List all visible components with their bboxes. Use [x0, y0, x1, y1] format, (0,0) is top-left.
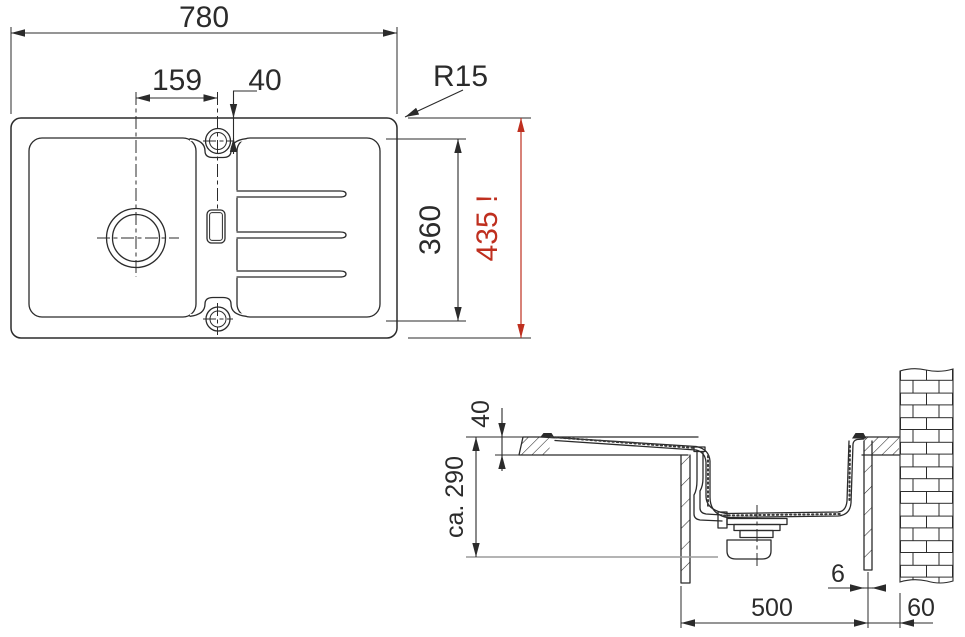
dim-360: 360 — [386, 139, 466, 321]
overflow-hole — [207, 210, 225, 243]
cabinet-panel-left — [681, 455, 690, 583]
dim-435-label: 435 ! — [471, 195, 504, 262]
dim-ca290-label: ca. 290 — [441, 456, 469, 538]
bowl-outer-wall — [696, 439, 864, 518]
groove-2 — [237, 232, 346, 238]
dim-40-top-label: 40 — [248, 64, 281, 97]
dim-780: 780 — [11, 1, 397, 114]
brick-wall — [900, 369, 953, 583]
drawing-canvas: 780 159 40 R15 360 435 ! — [0, 0, 965, 637]
groove-1 — [237, 191, 346, 197]
dim-360-label: 360 — [414, 205, 447, 255]
drain-trap — [727, 540, 771, 559]
rim-edge-right — [852, 433, 867, 439]
sink-outline — [11, 118, 397, 338]
drainboard-grooves — [236, 190, 346, 278]
dim-r15-label: R15 — [433, 60, 488, 93]
dim-780-label: 780 — [179, 1, 229, 34]
dim-6: 6 — [828, 560, 886, 628]
bowl-outline — [29, 138, 196, 317]
dim-159-label: 159 — [152, 64, 202, 97]
drain-hole — [97, 92, 179, 277]
wall-section — [900, 369, 953, 583]
sink-technical-drawing: 780 159 40 R15 360 435 ! — [0, 0, 965, 637]
drainboard-outline — [237, 138, 380, 317]
dim-60-label: 60 — [907, 594, 935, 622]
dim-r15: R15 — [405, 60, 488, 117]
dim-40-side: 40 — [466, 400, 523, 471]
dim-40-side-label: 40 — [467, 400, 495, 428]
dim-500-label: 500 — [751, 594, 793, 622]
bowl-inner-wall — [696, 441, 849, 514]
cabinet-panel-right — [864, 441, 872, 570]
sink-top-view — [11, 92, 397, 338]
dim-6-label: 6 — [831, 560, 845, 588]
groove-3 — [237, 271, 346, 277]
dim-60: 60 — [868, 593, 935, 628]
countertop-right — [862, 437, 899, 455]
dim-159: 159 — [136, 64, 218, 98]
dim-ca290: ca. 290 — [441, 437, 476, 557]
dim-500: 500 — [681, 586, 868, 628]
sink-side-view — [466, 369, 953, 583]
